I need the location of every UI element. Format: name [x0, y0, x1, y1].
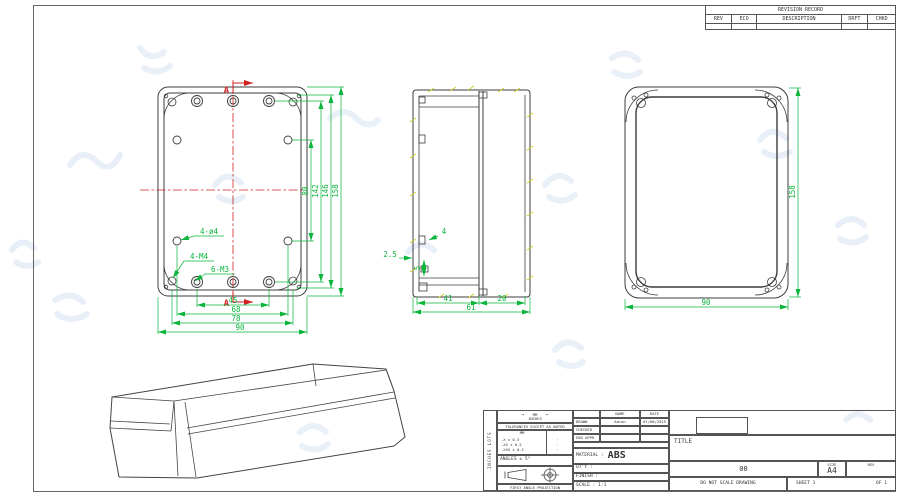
- sheet-cell: SHEET 1 OF 1: [787, 477, 896, 491]
- qty-label: QT'Y :: [574, 465, 668, 472]
- front-view-dimensions: [158, 87, 344, 334]
- revision-col-eco: ECO: [732, 15, 758, 23]
- callout-6-m3: 6-M3: [211, 265, 229, 274]
- back-view-dimensions: [625, 88, 801, 310]
- dim-step-5: 5: [413, 266, 422, 271]
- drawn-name: Aaron: [601, 419, 639, 425]
- dim-lid-20: 20: [497, 294, 507, 303]
- tolerance-inch-3: ·: [556, 448, 558, 452]
- units-inches-label: INCHES: [528, 417, 542, 421]
- first-angle-projection-icon: [498, 467, 572, 483]
- do-not-scale-cell: DO NOT SCALE DRAWING: [669, 477, 787, 491]
- rev-label: REV: [847, 463, 895, 467]
- angles-cell: ANGLES ± 5°: [497, 455, 573, 466]
- drawing-sheet: A A 80 142 146 158 45 68 78 90 4-ø4 4-M4…: [0, 0, 900, 500]
- drawn-label-cell: DRAWN: [573, 418, 600, 426]
- qty-cell: QT'Y :: [573, 464, 669, 473]
- drawing-number: 00: [670, 462, 817, 476]
- side-strip-label: INCHES LOTS: [484, 411, 496, 490]
- material-value: ABS: [608, 451, 626, 461]
- watermark-pattern: [12, 48, 870, 450]
- units-arrow-left-icon: →: [521, 414, 524, 419]
- logo-pane: [669, 410, 896, 435]
- sheet-of: OF 1: [876, 482, 887, 487]
- name-header: NAME: [601, 411, 639, 417]
- dim-90-back: 90: [701, 298, 711, 307]
- checked-label: CHECKED: [574, 427, 599, 433]
- title-cell: TITLE: [669, 435, 896, 461]
- drawn-date-cell: 01/08/2015: [640, 418, 669, 426]
- projection-label-cell: FIRST ANGLE PROJECTION: [497, 484, 573, 491]
- do-not-scale-note: DO NOT SCALE DRAWING: [670, 478, 786, 490]
- dim-158-front: 158: [331, 184, 340, 198]
- eng-appr-label-cell: ENG APPR: [573, 434, 600, 442]
- dim-hole-span-80: 80: [301, 186, 310, 196]
- revision-col-drft: DRFT: [842, 15, 869, 23]
- date-header: DATE: [641, 411, 668, 417]
- tolerances-note-cell: TOLERANCES EXCEPT AS NOTED: [497, 423, 573, 430]
- title-block-side-strip: INCHES LOTS: [483, 410, 497, 491]
- finish-label: FINISH :: [574, 474, 668, 480]
- front-view: [158, 87, 307, 296]
- callout-4-dia4: 4-ø4: [200, 227, 219, 236]
- back-view: [625, 87, 788, 298]
- revision-col-chkd: CHKD: [868, 15, 895, 23]
- scale-label: SCALE : 1:1: [574, 482, 668, 490]
- dim-146: 146: [321, 184, 330, 198]
- dim-body-41: 41: [443, 294, 452, 303]
- tolerance-row-3: .XXX ± 0.1: [501, 448, 524, 452]
- title-block: INCHES LOTS → MM INCHES ← TOLERANCES EXC…: [483, 410, 896, 491]
- dim-total-61: 61: [466, 303, 475, 312]
- units-arrow-right-icon: ←: [546, 414, 549, 419]
- drawn-name-cell: Aaron: [600, 418, 640, 426]
- section-letter-top: A: [224, 86, 230, 96]
- material-cell: MATERIAL : ABS: [573, 448, 669, 464]
- sheet-number: SHEET 1: [796, 482, 815, 487]
- side-view: [413, 90, 530, 297]
- angles-tolerance: ANGLES ± 5°: [498, 456, 572, 465]
- logo-placeholder: [696, 417, 748, 434]
- drawn-date: 01/08/2015: [641, 419, 668, 425]
- dim-90-front: 90: [235, 323, 245, 332]
- title-label: TITLE: [674, 439, 692, 445]
- dim-lip-2_5: 2.5: [383, 250, 397, 259]
- units-cell: → MM INCHES ←: [497, 410, 573, 423]
- revision-col-rev: REV: [706, 15, 732, 23]
- eng-appr-label: ENG APPR: [574, 435, 599, 441]
- dim-158-back: 158: [788, 185, 797, 199]
- checked-label-cell: CHECKED: [573, 426, 600, 434]
- tolerance-table: MM .X ± 0.3 .XX ± 0.2 .XXX ± 0.1 · · ·: [497, 430, 573, 455]
- dim-68: 68: [231, 305, 241, 314]
- dim-tab-4: 4: [442, 227, 447, 236]
- revision-table-title: REVISION RECORD: [706, 6, 895, 15]
- tolerances-note: TOLERANCES EXCEPT AS NOTED: [498, 424, 572, 429]
- material-label: MATERIAL :: [576, 454, 604, 459]
- drawn-label: DRAWN: [574, 419, 599, 425]
- size-cell: SIZE A4: [818, 461, 846, 477]
- dim-142: 142: [311, 184, 320, 198]
- dim-45: 45: [228, 296, 237, 305]
- dim-78: 78: [231, 314, 241, 323]
- revision-col-description: DESCRIPTION: [757, 15, 841, 23]
- scale-cell: SCALE : 1:1: [573, 481, 669, 491]
- finish-cell: FINISH :: [573, 473, 669, 481]
- section-hatch-ticks: [410, 86, 533, 298]
- revision-table: REVISION RECORD REV ECO DESCRIPTION DRFT…: [705, 5, 896, 30]
- date-header-cell: DATE: [640, 410, 669, 418]
- projection-label: FIRST ANGLE PROJECTION: [498, 485, 572, 490]
- drawing-number-cell: 00: [669, 461, 818, 477]
- name-header-cell: NAME: [600, 410, 640, 418]
- isometric-view: [110, 364, 405, 478]
- size-value: A4: [819, 467, 845, 475]
- projection-symbol-cell: [497, 466, 573, 484]
- rev-cell: REV: [846, 461, 896, 477]
- callout-4-m4: 4-M4: [190, 252, 209, 261]
